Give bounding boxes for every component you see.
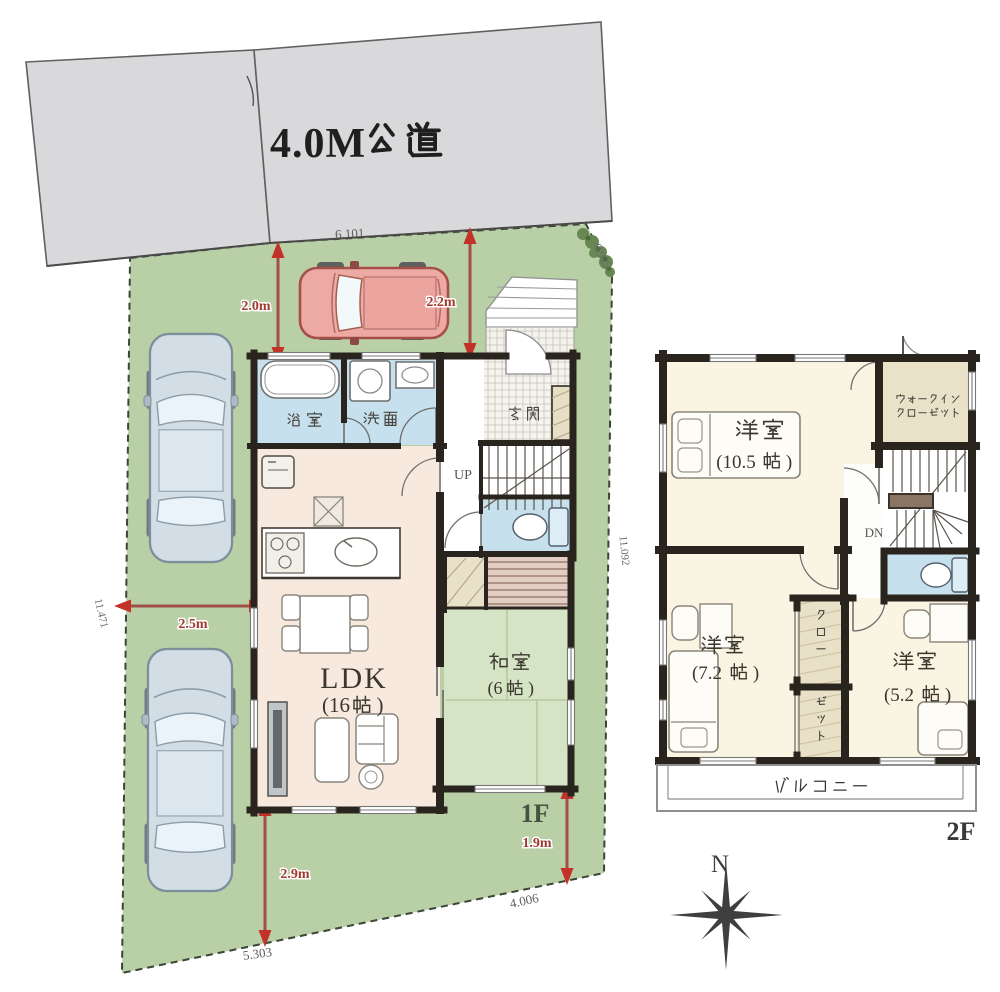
svg-text:1.9m: 1.9m	[522, 836, 552, 851]
svg-text:): )	[753, 663, 759, 684]
svg-text:DN: DN	[865, 525, 884, 540]
svg-text:): )	[528, 678, 534, 699]
svg-text:(7.2: (7.2	[692, 663, 722, 684]
svg-text:(10.5: (10.5	[716, 452, 756, 473]
svg-text:): )	[377, 693, 384, 717]
svg-text:UP: UP	[454, 468, 472, 483]
svg-text:N: N	[711, 851, 729, 878]
svg-text:LDK: LDK	[320, 662, 388, 695]
svg-text:2.9m: 2.9m	[280, 867, 310, 882]
svg-text:4.0M: 4.0M	[270, 121, 366, 167]
svg-text:(16: (16	[322, 693, 350, 717]
svg-text:): )	[786, 452, 792, 473]
svg-text:): )	[945, 685, 951, 706]
svg-text:2.2m: 2.2m	[426, 295, 456, 310]
svg-text:(5.2: (5.2	[884, 685, 914, 706]
svg-text:1F: 1F	[521, 799, 550, 828]
svg-text:2.5m: 2.5m	[178, 617, 208, 632]
svg-text:2F: 2F	[947, 817, 976, 846]
svg-text:(6: (6	[488, 678, 503, 699]
svg-text:2.0m: 2.0m	[241, 299, 271, 314]
